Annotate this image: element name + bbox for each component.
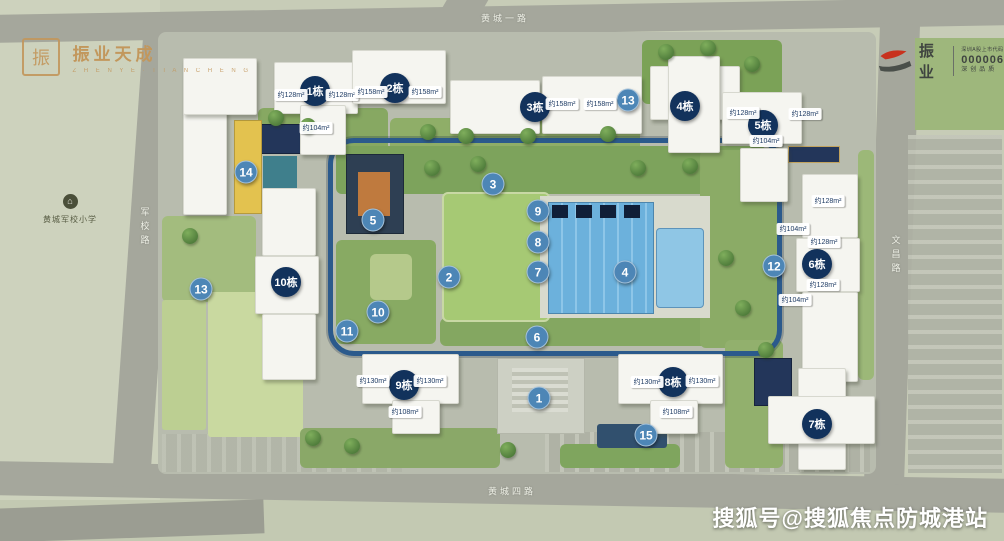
road-label-left: 军校路 (139, 207, 152, 249)
building-number-marker: 6栋 (802, 249, 832, 279)
amenity-number-marker: 15 (635, 424, 658, 447)
unit-area-label: 约104m² (777, 223, 810, 235)
unit-area-label: 约104m² (750, 135, 783, 147)
divider (953, 46, 954, 76)
unit-area-label: 约128m² (326, 89, 359, 101)
unit-area-label: 约104m² (779, 294, 812, 306)
amenity-number-marker: 13 (617, 89, 640, 112)
building-5 (740, 148, 788, 202)
tree-icon (424, 160, 440, 176)
seal-icon: 振 (22, 38, 60, 76)
site-signboard (788, 146, 840, 163)
unit-area-label: 约108m² (660, 406, 693, 418)
unit-area-label: 约130m² (631, 376, 664, 388)
tree-icon (700, 40, 716, 56)
amenity-number-marker: 4 (614, 261, 637, 284)
green-east-edge (858, 150, 874, 380)
unit-area-label: 约158m² (546, 98, 579, 110)
road-label-right: 文昌路 (890, 235, 903, 277)
tree-icon (305, 430, 321, 446)
unit-area-label: 约130m² (414, 375, 447, 387)
tree-icon (718, 250, 734, 266)
zhenye-logo-icon (874, 43, 918, 79)
site-plan-image: 1栋2栋3栋4栋5栋6栋7栋8栋9栋10栋 123456789101112131… (0, 0, 1004, 541)
tree-icon (458, 128, 474, 144)
amenity-number-marker: 10 (367, 301, 390, 324)
unit-area-label: 约130m² (357, 375, 390, 387)
tree-icon (344, 438, 360, 454)
tree-icon (600, 126, 616, 142)
tree-icon (658, 44, 674, 60)
pool-starting-blocks (552, 205, 648, 218)
amenity-number-marker: 2 (438, 266, 461, 289)
tree-icon (500, 442, 516, 458)
unit-area-label: 约128m² (789, 108, 822, 120)
unit-area-label: 约158m² (409, 86, 442, 98)
tree-icon (682, 158, 698, 174)
building-10 (262, 188, 316, 256)
school-icon: ⌂ (63, 194, 78, 209)
project-logo: 振 振业天成 Z H E N Y E · T I A N C H E N G (22, 38, 251, 76)
school-label: 黄城军校小学 (40, 214, 100, 225)
swimming-pool (548, 202, 654, 314)
project-name-latin: Z H E N Y E · T I A N C H E N G (72, 68, 251, 74)
tree-icon (470, 156, 486, 172)
unit-area-label: 约130m² (686, 375, 719, 387)
amenity-number-marker: 9 (527, 200, 550, 223)
tree-icon (520, 128, 536, 144)
unit-area-label: 约158m² (355, 86, 388, 98)
amenity-number-marker: 1 (528, 387, 551, 410)
developer-tagline: 深创品质 (961, 67, 1004, 74)
unit-area-label: 约108m² (389, 406, 422, 418)
tree-icon (420, 124, 436, 140)
tree-icon (735, 300, 751, 316)
unit-area-label: 约128m² (808, 236, 841, 248)
road-label-top: 黄城一路 (481, 12, 529, 25)
school-poi: ⌂ 黄城军校小学 (40, 194, 100, 225)
amenity-number-marker: 14 (235, 161, 258, 184)
tree-icon (268, 110, 284, 126)
kids-pool (656, 228, 704, 308)
amenity-number-marker: 3 (482, 173, 505, 196)
amenity-number-marker: 13 (190, 278, 213, 301)
developer-name: 振业 (919, 40, 947, 82)
amenity-number-marker: 12 (763, 255, 786, 278)
unit-area-label: 约128m² (807, 279, 840, 291)
unit-area-label: 约158m² (584, 98, 617, 110)
unit-area-label: 约128m² (812, 195, 845, 207)
amenity-number-marker: 8 (527, 231, 550, 254)
amenity-number-marker: 11 (336, 320, 359, 343)
project-name: 振业天成 (72, 40, 251, 65)
green-south (300, 428, 500, 468)
sports-field (162, 300, 206, 430)
road-label-bottom: 黄城四路 (488, 485, 536, 498)
unit-area-label: 约128m² (727, 107, 760, 119)
tree-icon (182, 228, 198, 244)
developer-logo: 振业 深圳A股上市代码 000006 深创品质 (874, 40, 1004, 82)
unit-area-label: 约104m² (300, 122, 333, 134)
tree-icon (744, 56, 760, 72)
amenity-number-marker: 7 (527, 261, 550, 284)
tree-icon (630, 160, 646, 176)
watermark: 搜狐号@搜狐焦点防城港站 (713, 501, 988, 533)
amenity-number-marker: 6 (526, 326, 549, 349)
building-number-marker: 7栋 (802, 409, 832, 439)
building-number-marker: 10栋 (271, 267, 301, 297)
unit-area-label: 约128m² (275, 89, 308, 101)
stock-code: 000006 (961, 54, 1004, 67)
building-number-marker: 4栋 (670, 91, 700, 121)
amenity-number-marker: 5 (362, 209, 385, 232)
building-10 (262, 314, 316, 380)
tree-icon (758, 342, 774, 358)
parking-right (908, 135, 1002, 473)
